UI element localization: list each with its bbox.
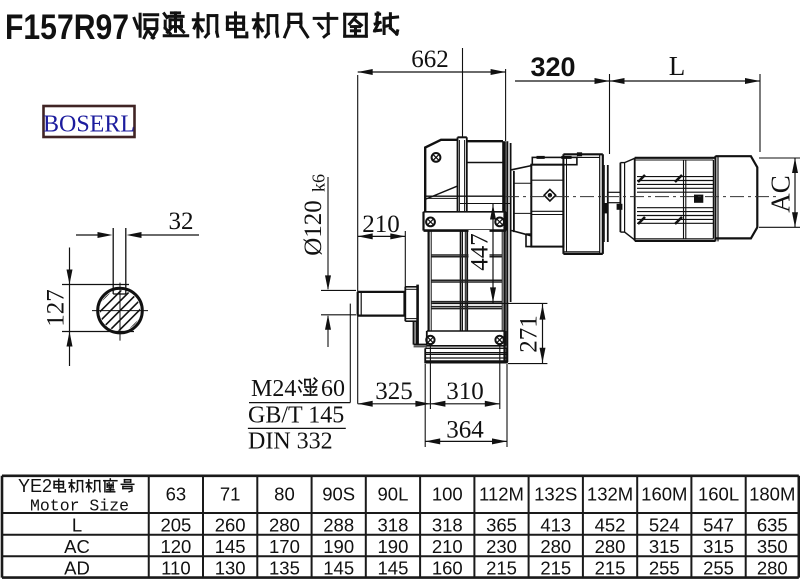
svg-text:255: 255 — [649, 558, 680, 579]
svg-text:100: 100 — [432, 484, 463, 505]
svg-text:Ø120: Ø120 — [300, 200, 327, 256]
svg-text:135: 135 — [269, 558, 300, 579]
svg-text:L: L — [72, 515, 82, 536]
svg-text:160: 160 — [432, 558, 463, 579]
svg-text:315: 315 — [649, 536, 680, 557]
svg-text:280: 280 — [269, 515, 300, 536]
svg-text:Motor Size: Motor Size — [30, 497, 129, 516]
svg-text:130: 130 — [215, 558, 246, 579]
svg-text:GB/T 145: GB/T 145 — [248, 403, 344, 429]
svg-text:YE2: YE2 — [18, 476, 52, 496]
svg-text:F157R97: F157R97 — [5, 8, 129, 47]
svg-text:215: 215 — [595, 558, 626, 579]
svg-text:205: 205 — [160, 515, 191, 536]
svg-text:280: 280 — [595, 536, 626, 557]
svg-text:255: 255 — [703, 558, 734, 579]
svg-text:M24: M24 — [251, 376, 296, 402]
svg-text:71: 71 — [220, 484, 241, 505]
svg-text:127: 127 — [43, 289, 70, 327]
svg-text:112M: 112M — [479, 484, 524, 505]
svg-text:80: 80 — [274, 484, 295, 505]
svg-text:635: 635 — [757, 515, 788, 536]
svg-text:190: 190 — [378, 536, 409, 557]
svg-text:k6: k6 — [309, 174, 329, 192]
svg-text:280: 280 — [540, 536, 571, 557]
svg-text:180M: 180M — [749, 484, 795, 505]
svg-text:452: 452 — [595, 515, 626, 536]
svg-text:260: 260 — [215, 515, 246, 536]
svg-text:288: 288 — [323, 515, 354, 536]
svg-text:413: 413 — [540, 515, 571, 536]
svg-text:170: 170 — [269, 536, 300, 557]
svg-text:320: 320 — [530, 52, 575, 82]
svg-text:145: 145 — [215, 536, 246, 557]
svg-text:DIN 332: DIN 332 — [248, 429, 333, 455]
svg-text:AC: AC — [64, 536, 90, 557]
svg-text:310: 310 — [446, 378, 484, 405]
svg-text:60: 60 — [321, 376, 345, 402]
svg-text:110: 110 — [161, 558, 191, 579]
svg-text:547: 547 — [703, 515, 734, 536]
svg-text:318: 318 — [378, 515, 409, 536]
svg-text:364: 364 — [446, 417, 484, 444]
svg-text:190: 190 — [323, 536, 354, 557]
svg-text:120: 120 — [160, 536, 191, 557]
svg-text:160M: 160M — [641, 484, 687, 505]
svg-text:132M: 132M — [587, 484, 633, 505]
svg-text:280: 280 — [757, 558, 788, 579]
svg-text:132S: 132S — [534, 484, 577, 505]
svg-text:524: 524 — [649, 515, 680, 536]
svg-text:325: 325 — [375, 378, 413, 405]
svg-text:145: 145 — [323, 558, 354, 579]
svg-text:365: 365 — [486, 515, 517, 536]
svg-text:L: L — [669, 51, 686, 81]
svg-text:145: 145 — [378, 558, 409, 579]
svg-text:318: 318 — [432, 515, 463, 536]
svg-text:AD: AD — [64, 558, 90, 579]
svg-text:215: 215 — [486, 558, 517, 579]
svg-text:210: 210 — [362, 211, 400, 238]
svg-text:63: 63 — [166, 484, 187, 505]
svg-text:160L: 160L — [698, 484, 739, 505]
svg-text:AC: AC — [766, 175, 796, 213]
svg-text:90S: 90S — [322, 484, 355, 505]
svg-text:315: 315 — [703, 536, 734, 557]
svg-text:271: 271 — [516, 315, 543, 353]
svg-text:215: 215 — [540, 558, 571, 579]
svg-text:350: 350 — [757, 536, 788, 557]
svg-text:210: 210 — [432, 536, 463, 557]
svg-text:BOSERL: BOSERL — [43, 112, 135, 138]
svg-text:32: 32 — [169, 208, 194, 235]
svg-text:662: 662 — [411, 46, 449, 73]
svg-text:230: 230 — [486, 536, 517, 557]
svg-text:90L: 90L — [378, 484, 409, 505]
svg-text:447: 447 — [467, 233, 494, 271]
